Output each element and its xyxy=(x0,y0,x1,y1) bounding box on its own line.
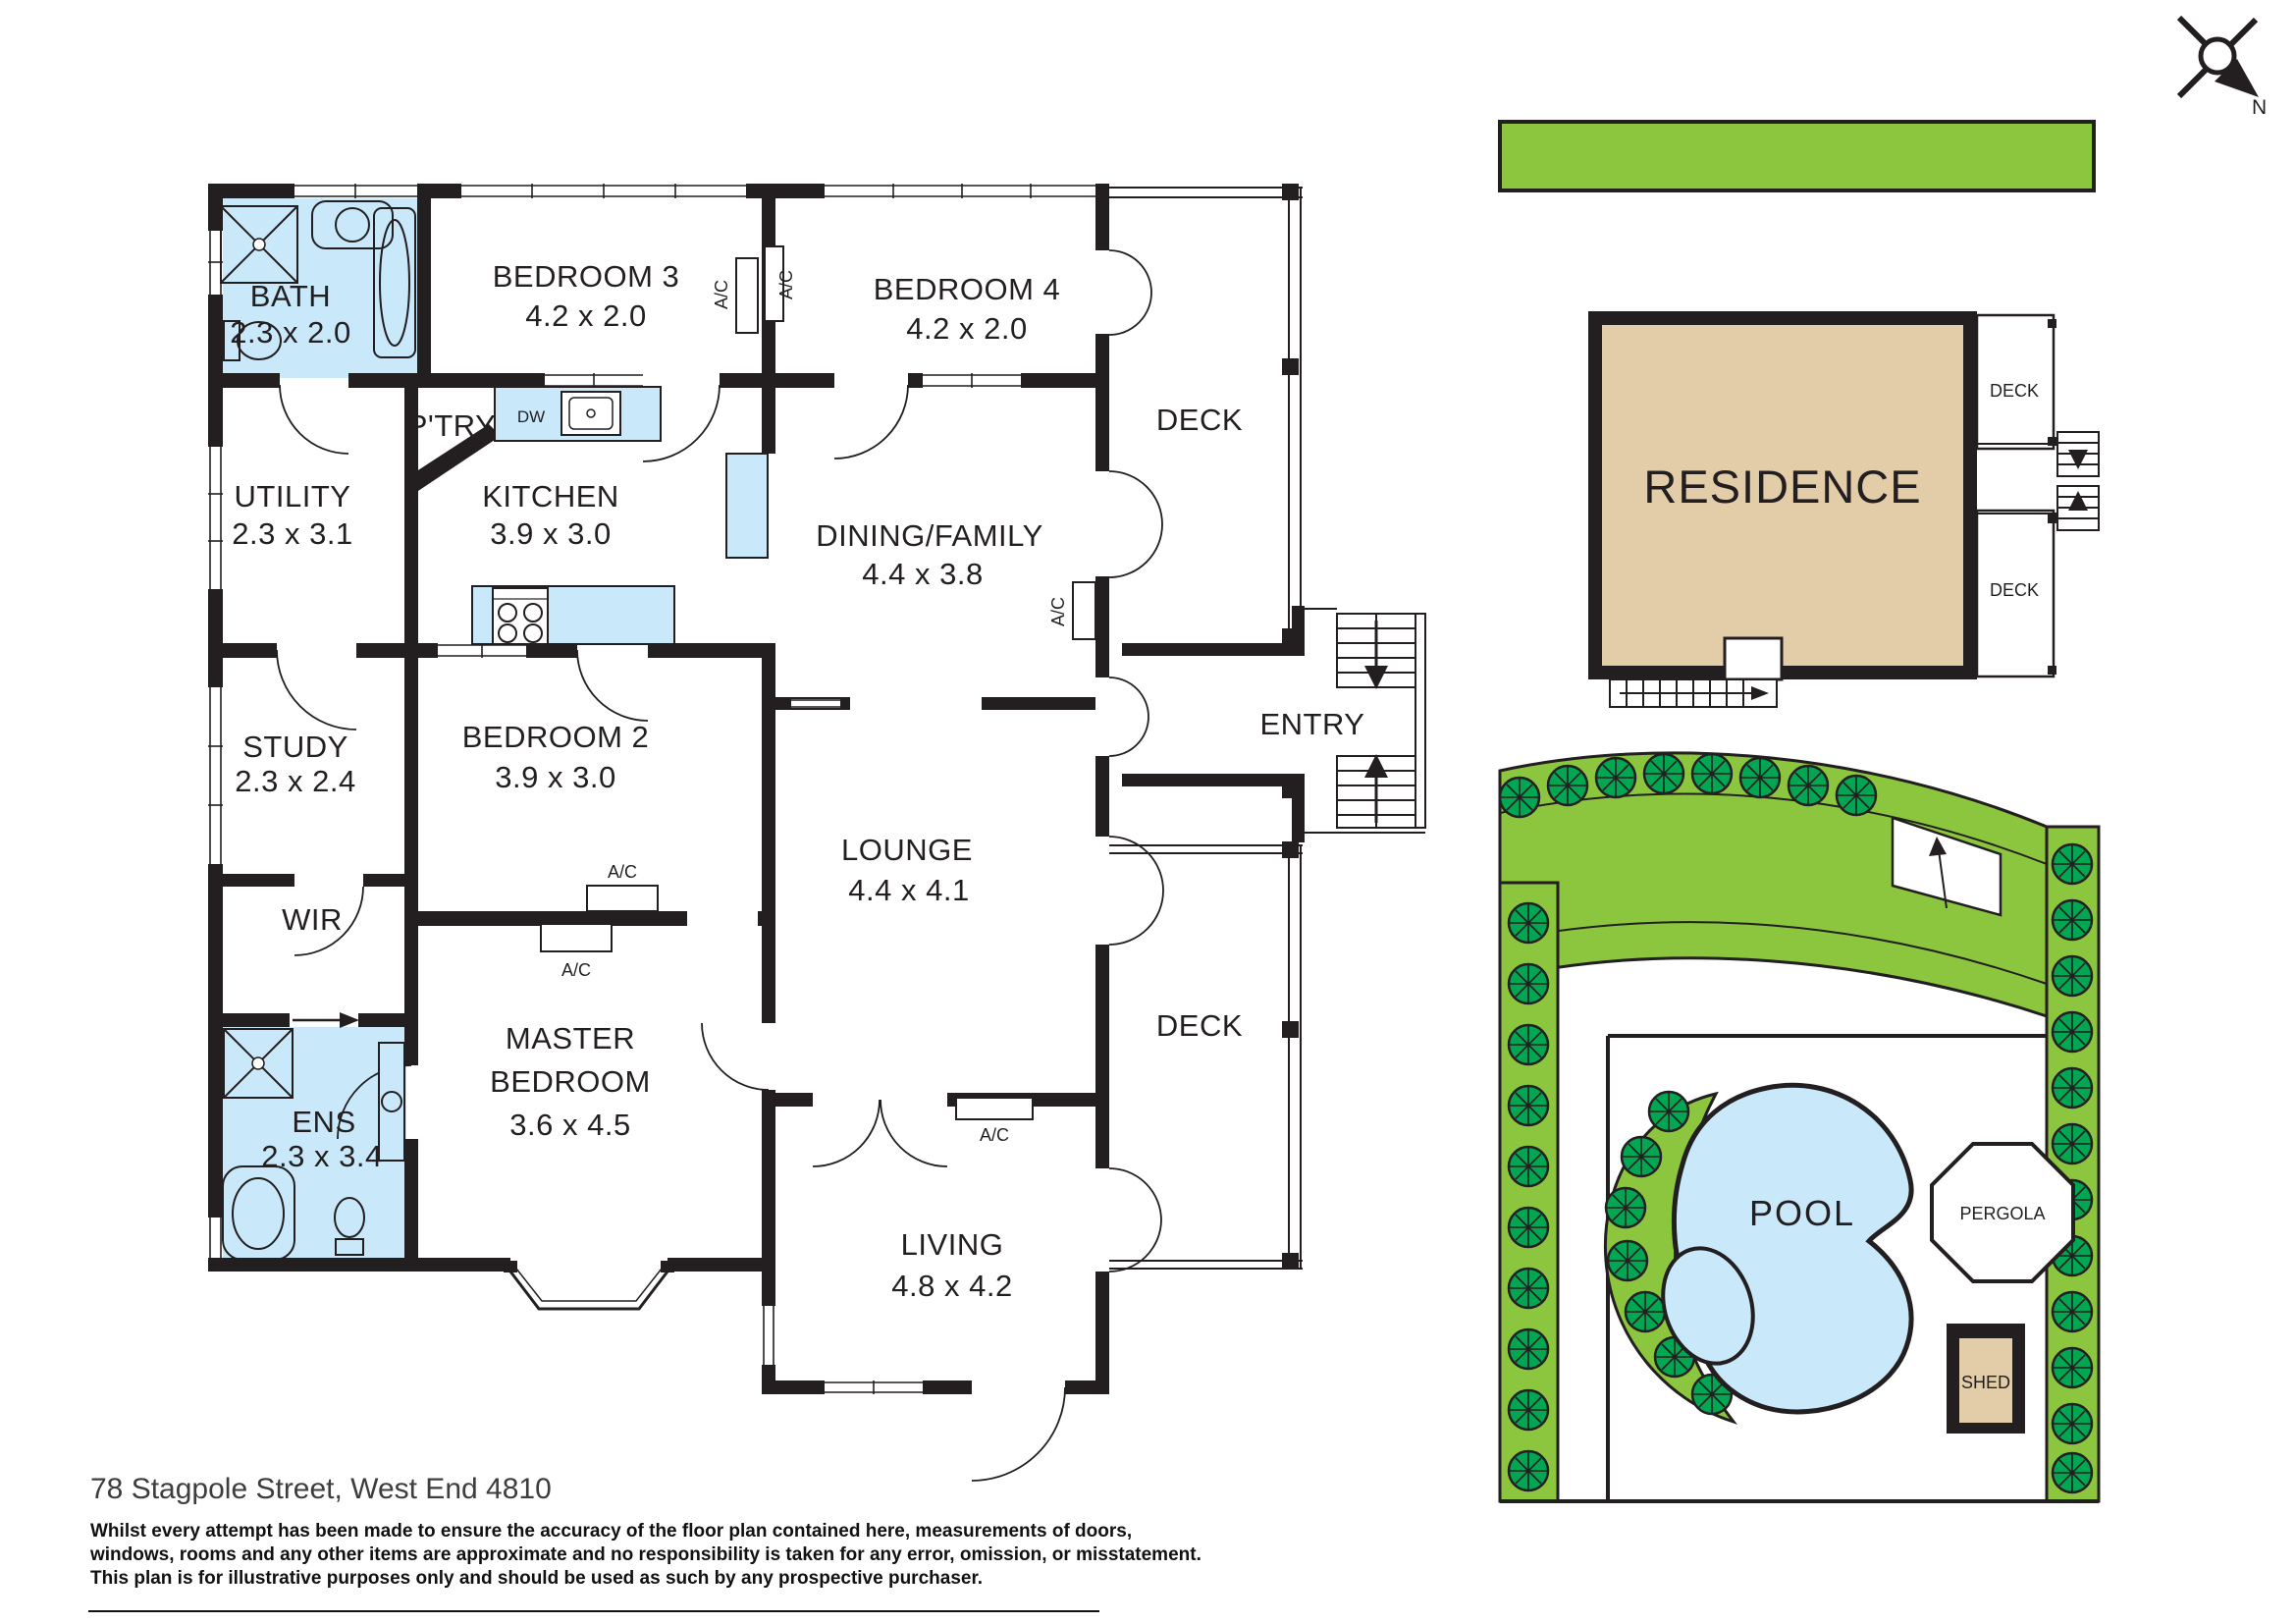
tree-icon xyxy=(2053,1292,2092,1331)
room-dims-bedroom4: 4.2 x 2.0 xyxy=(906,311,1027,346)
tree-icon xyxy=(2053,1068,2092,1108)
entry-label: ENTRY xyxy=(1259,707,1364,741)
footer-rule xyxy=(88,1610,1099,1612)
tree-icon xyxy=(1606,1188,1645,1227)
room-dims-kitchen: 3.9 x 3.0 xyxy=(490,516,611,551)
wir-label: WIR xyxy=(282,902,343,937)
tree-icon xyxy=(2053,900,2092,940)
tree-icon xyxy=(1622,1137,1661,1176)
shed-shape: SHED xyxy=(1947,1324,2025,1434)
tree-icon xyxy=(1789,766,1828,805)
tree-icon xyxy=(2053,1012,2092,1052)
room-dims-lounge: 4.4 x 4.1 xyxy=(848,873,969,907)
ac-label: A/C xyxy=(712,280,731,309)
room-dims-study: 2.3 x 2.4 xyxy=(235,764,355,798)
tree-icon xyxy=(1644,754,1683,793)
tree-icon xyxy=(1626,1292,1665,1331)
footer: 78 Stagpole Street, West End 4810 Whilst… xyxy=(90,1473,1268,1591)
room-label-bedroom3: BEDROOM 3 xyxy=(493,259,680,294)
north-label: N xyxy=(2252,96,2267,119)
site-steps-icon xyxy=(1610,679,1777,707)
ac-label: A/C xyxy=(776,270,796,299)
room-label-lounge: LOUNGE xyxy=(841,833,973,867)
address-text: 78 Stagpole Street, West End 4810 xyxy=(90,1473,1268,1506)
room-dims-bedroom3: 4.2 x 2.0 xyxy=(525,298,646,333)
tree-icon xyxy=(1509,1451,1548,1490)
tree-icon xyxy=(1500,778,1539,817)
deck-label-top: DECK xyxy=(1156,403,1243,437)
tree-icon xyxy=(1740,758,1780,797)
room-dims-ens: 2.3 x 3.4 xyxy=(261,1139,382,1173)
tree-icon xyxy=(1509,964,1548,1003)
disclaimer-line-2: windows, rooms and any other items are a… xyxy=(90,1543,1268,1567)
room-label-utility: UTILITY xyxy=(235,479,351,514)
tree-icon xyxy=(1596,758,1635,797)
room-dims-bedroom2: 3.9 x 3.0 xyxy=(495,760,615,794)
residence-label: RESIDENCE xyxy=(1643,460,1921,513)
site-plan: RESIDENCE DECK DECK xyxy=(1500,122,2099,1501)
site-deck-label-2: DECK xyxy=(1990,580,2039,600)
tree-icon xyxy=(1509,1390,1548,1430)
room-label-study: STUDY xyxy=(242,730,348,764)
room-dims-master: 3.6 x 4.5 xyxy=(509,1108,630,1142)
stove-icon xyxy=(493,588,548,644)
ac-label: A/C xyxy=(980,1125,1009,1145)
room-label-bedroom4: BEDROOM 4 xyxy=(874,272,1061,306)
tree-icon xyxy=(2053,1453,2092,1492)
pool-area: POOL PERGOLA SHED xyxy=(1605,1085,2073,1434)
tree-icon xyxy=(2053,1404,2092,1443)
ac-label: A/C xyxy=(561,960,591,980)
room-label-master2: BEDROOM xyxy=(490,1064,651,1099)
room-dims-utility: 2.3 x 3.1 xyxy=(232,516,352,551)
tree-icon xyxy=(1509,1025,1548,1064)
deck-label-bottom: DECK xyxy=(1156,1008,1243,1043)
room-label-ens: ENS xyxy=(292,1105,355,1139)
dishwasher-label: DW xyxy=(517,407,545,426)
room-label-dining: DINING/FAMILY xyxy=(816,518,1043,553)
room-label-kitchen: KITCHEN xyxy=(482,479,619,514)
tree-icon xyxy=(1509,1329,1548,1369)
pantry-label: P'TRY xyxy=(407,408,497,443)
tree-icon xyxy=(2053,1124,2092,1164)
tree-icon xyxy=(2053,844,2092,884)
pergola-label: PERGOLA xyxy=(1959,1204,2045,1223)
room-dims-bath: 2.3 x 2.0 xyxy=(230,315,350,350)
tree-icon xyxy=(1837,776,1876,815)
room-label-living: LIVING xyxy=(901,1227,1004,1262)
tree-icon xyxy=(2053,956,2092,996)
pool-label: POOL xyxy=(1749,1193,1855,1233)
room-dims-living: 4.8 x 4.2 xyxy=(891,1269,1012,1303)
tree-icon xyxy=(1649,1092,1688,1131)
tree-icon xyxy=(1509,1269,1548,1308)
tree-icon xyxy=(2053,1348,2092,1387)
room-label-master1: MASTER xyxy=(506,1021,635,1056)
floor-plan: BATH 2.3 x 2.0 BEDROOM 3 4.2 x 2.0 BEDRO… xyxy=(208,184,1425,1481)
site-decks: DECK DECK xyxy=(1977,315,2056,677)
room-label-bedroom2: BEDROOM 2 xyxy=(462,720,650,754)
tree-icon xyxy=(1509,1208,1548,1247)
tree-icon xyxy=(1548,766,1587,805)
disclaimer-line-1: Whilst every attempt has been made to en… xyxy=(90,1520,1268,1543)
bay-window xyxy=(504,1261,674,1309)
tree-icon xyxy=(1692,754,1732,793)
tree-icon xyxy=(1509,1086,1548,1125)
tree-icon xyxy=(1509,1147,1548,1186)
plan-canvas: BATH 2.3 x 2.0 BEDROOM 3 4.2 x 2.0 BEDRO… xyxy=(0,0,2296,1624)
room-label-bath: BATH xyxy=(250,279,331,313)
ac-label: A/C xyxy=(608,862,637,882)
site-residence: RESIDENCE DECK DECK xyxy=(1588,311,2099,707)
site-deck-label-1: DECK xyxy=(1990,381,2039,401)
tree-icon xyxy=(1509,903,1548,943)
north-indicator: N xyxy=(2179,18,2267,119)
floorplan-page: { "address": "78 Stagpole Street, West E… xyxy=(0,0,2296,1624)
tree-icon xyxy=(1608,1241,1647,1280)
street-verge xyxy=(1500,122,2094,190)
room-dims-dining: 4.4 x 3.8 xyxy=(862,557,983,591)
fridge-icon xyxy=(726,454,768,558)
disclaimer-line-3: This plan is for illustrative purposes o… xyxy=(90,1567,1268,1591)
ac-label: A/C xyxy=(1048,597,1068,626)
shed-label: SHED xyxy=(1961,1373,2010,1392)
